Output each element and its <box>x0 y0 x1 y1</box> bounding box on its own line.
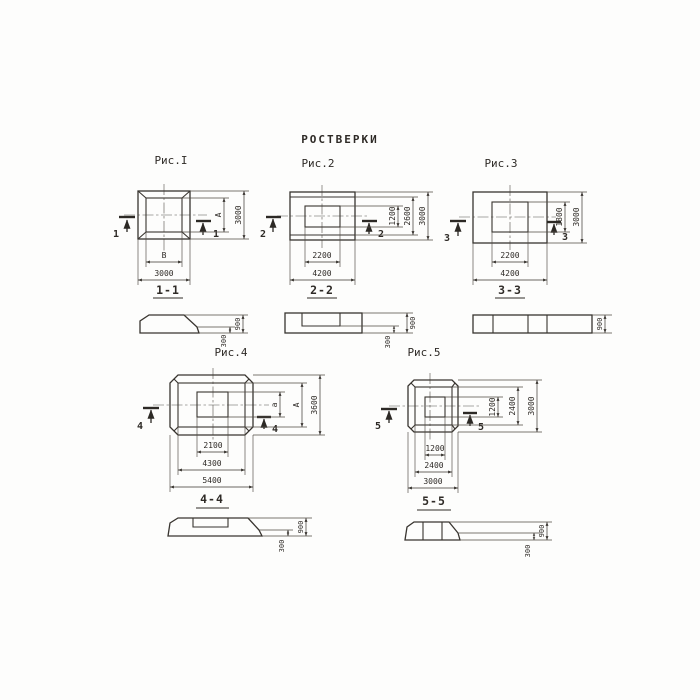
figure-5: Рис.5 5 5 1200 2400 3000 <box>375 346 552 557</box>
fig2-dim-v2: 2600 <box>355 197 418 235</box>
dim-value: 1200 <box>425 444 444 453</box>
dim-value: 900 <box>596 318 604 331</box>
fig2-cut-mark-inner: 2 <box>362 221 384 240</box>
fig1-section-profile <box>140 315 199 333</box>
fig5-cut-label: 5 <box>478 422 484 433</box>
dim-value: 2400 <box>508 396 517 415</box>
fig2-cut-mark-left: 2 <box>260 217 281 240</box>
fig4-section-recess <box>193 518 228 527</box>
fig5-caption: Рис.5 <box>407 346 440 359</box>
drawing-sheet: РОСТВЕРКИ Рис.I 1 1 А 3000 <box>0 0 700 700</box>
fig3-section-view: 900 <box>473 315 612 333</box>
dim-value: 2100 <box>203 441 222 450</box>
fig5-section-joints <box>423 522 442 540</box>
fig5-dim-b1: 1200 <box>425 417 445 460</box>
figure-4: Рис.4 4 4 а А 3600 <box>137 346 325 552</box>
fig5-plan-inner <box>425 397 445 417</box>
dim-value: 3000 <box>423 477 442 486</box>
drawing-canvas: РОСТВЕРКИ Рис.I 1 1 А 3000 <box>0 0 700 700</box>
dim-value: 900 <box>538 525 546 538</box>
fig2-section-recess <box>302 313 340 326</box>
fig4-cut-label: 4 <box>137 421 143 432</box>
fig4-plan-inner <box>197 392 228 417</box>
dim-value: 1200 <box>388 206 397 225</box>
dim-value: 900 <box>297 521 305 534</box>
fig4-section-title: 4-4 <box>200 492 224 506</box>
dim-value: 3000 <box>418 206 427 225</box>
fig5-cut-mark-inner: 5 <box>463 413 484 433</box>
sheet-title: РОСТВЕРКИ <box>301 133 379 146</box>
fig5-centerlines <box>389 373 480 440</box>
figure-2: Рис.2 2 2 1200 2600 3000 <box>260 157 433 348</box>
fig2-dim-b2: 4200 <box>290 240 355 285</box>
fig5-cut-label: 5 <box>375 421 381 432</box>
dim-value: 2600 <box>403 206 412 225</box>
fig1-caption: Рис.I <box>154 154 187 167</box>
fig2-cut-label: 2 <box>260 229 266 240</box>
fig2-section-ext-lines <box>340 313 413 333</box>
fig5-section-ext-lines <box>449 522 552 540</box>
dim-value: 5400 <box>202 476 221 485</box>
fig2-plan-inner <box>305 206 340 227</box>
dim-value: 2200 <box>312 251 331 260</box>
fig3-cut-mark-left: 3 <box>444 221 466 244</box>
dim-value: 3000 <box>527 396 536 415</box>
dim-value: 2200 <box>500 251 519 260</box>
dim-value: 4200 <box>312 269 331 278</box>
figure-3: Рис.3 3 3 1800 3000 2200 <box>444 157 612 333</box>
fig2-section-title: 2-2 <box>310 283 334 297</box>
dim-value: 3600 <box>310 395 319 414</box>
fig5-section-profile <box>405 522 460 540</box>
fig1-cut-label: 1 <box>213 229 219 240</box>
fig1-cut-mark-inner: 1 <box>196 221 219 240</box>
fig1-section-view: 300 900 <box>140 315 248 347</box>
fig2-cut-label: 2 <box>378 229 384 240</box>
dim-value: 900 <box>234 318 242 331</box>
fig4-dim-v1: а <box>228 392 285 417</box>
fig4-cut-mark-inner: 4 <box>257 417 278 435</box>
fig3-cut-label: 3 <box>444 233 450 244</box>
dim-value: 300 <box>278 540 286 553</box>
fig1-centerlines <box>124 184 207 251</box>
fig5-cut-mark-left: 5 <box>375 409 397 432</box>
dim-value: а <box>270 402 279 407</box>
fig4-caption: Рис.4 <box>214 346 247 359</box>
dim-value: 3000 <box>154 269 173 278</box>
dim-value: 3000 <box>234 205 243 224</box>
dim-value: А <box>214 212 223 217</box>
figure-1: Рис.I 1 1 А 3000 В <box>113 154 249 347</box>
fig2-section-profile <box>285 313 362 333</box>
dim-value: 4200 <box>500 269 519 278</box>
fig1-cut-mark-left: 1 <box>113 217 135 240</box>
dim-value: 900 <box>409 317 417 330</box>
dim-value: 300 <box>384 336 392 349</box>
fig3-section-title: 3-3 <box>498 283 522 297</box>
fig4-dim-b1: 2100 <box>197 417 228 457</box>
fig1-cut-label: 1 <box>113 229 119 240</box>
fig4-dim-b2: 4300 <box>178 427 245 475</box>
dim-value: 4300 <box>202 459 221 468</box>
dim-value: В <box>162 251 167 260</box>
fig3-caption: Рис.3 <box>484 157 517 170</box>
fig1-section-title: 1-1 <box>156 283 180 297</box>
fig5-section-view: 300 900 <box>405 522 552 557</box>
fig4-cut-label: 4 <box>272 424 278 435</box>
fig3-section-joints <box>493 315 547 333</box>
fig4-section-view: 300 900 <box>168 518 312 552</box>
fig5-section-title: 5-5 <box>422 494 446 508</box>
dim-value: 1200 <box>488 397 497 416</box>
fig3-section-profile <box>473 315 592 333</box>
fig4-cut-mark-left: 4 <box>137 408 159 432</box>
dim-value: 2400 <box>424 461 443 470</box>
fig2-section-view: 300 900 <box>285 313 417 348</box>
fig2-caption: Рис.2 <box>301 157 334 170</box>
dim-value: 300 <box>524 545 532 558</box>
dim-value: А <box>292 402 301 407</box>
dim-value: 1800 <box>555 207 564 226</box>
fig2-dim-b1: 2200 <box>305 227 340 267</box>
fig2-dim-v1: 1200 <box>340 206 403 227</box>
fig3-cut-label: 3 <box>562 232 568 243</box>
dim-value: 3000 <box>572 207 581 226</box>
